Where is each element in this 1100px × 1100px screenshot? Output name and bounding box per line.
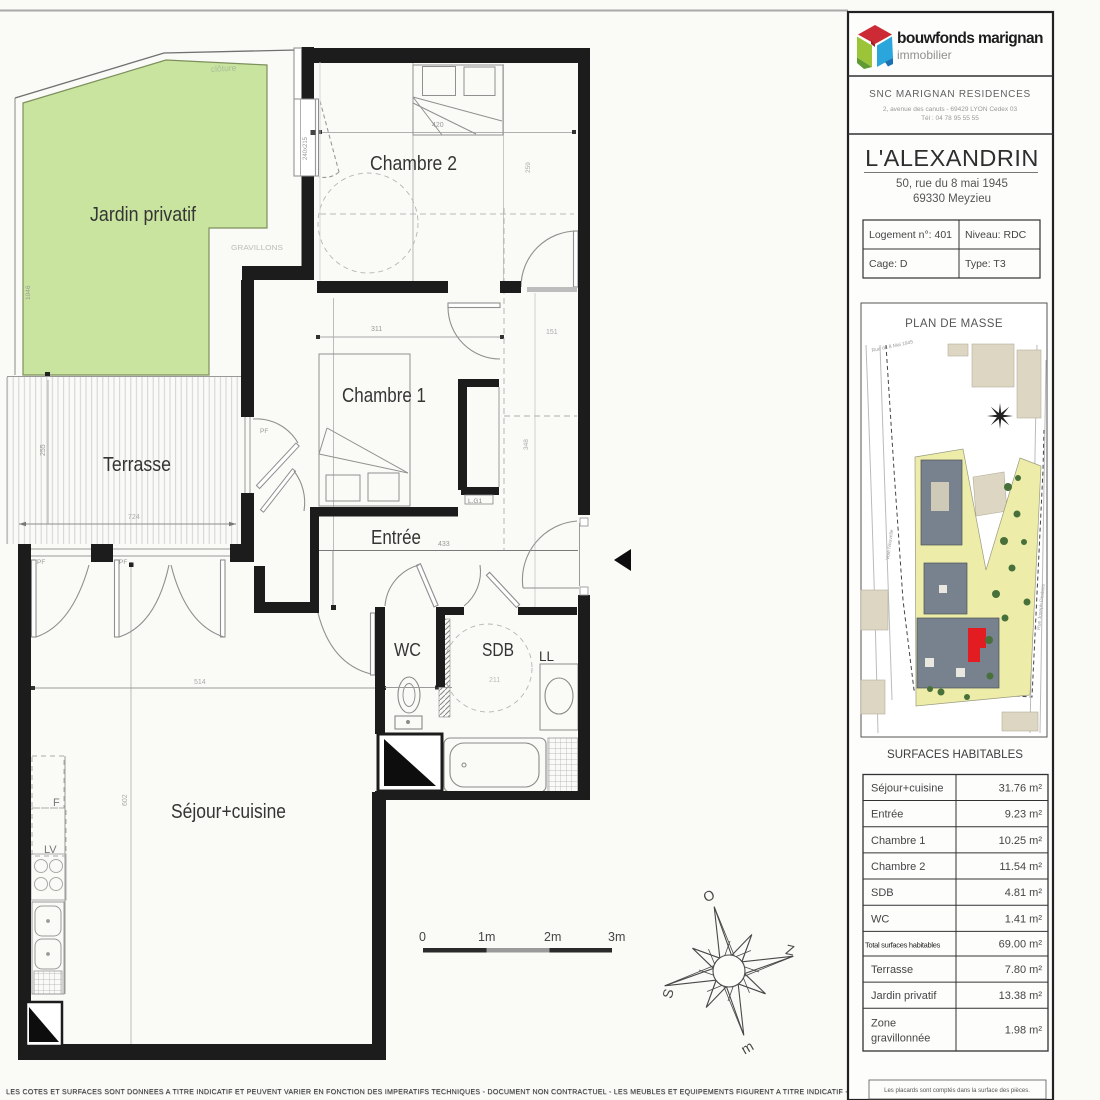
svg-text:PLAN DE MASSE: PLAN DE MASSE [905,318,1003,330]
svg-text:7.80 m²: 7.80 m² [1005,964,1043,976]
svg-text:50, rue du 8 mai 1945: 50, rue du 8 mai 1945 [896,178,1008,190]
svg-text:Entrée: Entrée [871,809,903,821]
svg-text:LL: LL [539,648,554,664]
svg-text:9.23 m²: 9.23 m² [1005,809,1043,821]
svg-text:1m: 1m [478,930,495,944]
svg-text:PF: PF [37,559,45,566]
svg-text:10.25 m²: 10.25 m² [999,835,1043,847]
svg-text:Jardin privatif: Jardin privatif [871,990,937,1002]
svg-text:Chambre 2: Chambre 2 [370,153,457,175]
svg-text:immobilier: immobilier [897,48,952,62]
svg-text:514: 514 [194,679,206,686]
svg-text:Séjour+cuisine: Séjour+cuisine [171,801,286,823]
svg-text:2, avenue des canuts - 69429 L: 2, avenue des canuts - 69429 LYON Cedex … [883,106,1018,113]
svg-text:SDB: SDB [482,640,514,660]
svg-text:Jardin privatif: Jardin privatif [90,204,196,226]
svg-text:WC: WC [394,640,421,660]
svg-text:Entrée: Entrée [371,527,421,549]
svg-text:724: 724 [128,514,140,521]
svg-text:Z: Z [784,941,796,959]
svg-text:PF: PF [260,428,268,435]
svg-text:bouwfonds marignan: bouwfonds marignan [897,30,1043,47]
svg-text:11.54 m²: 11.54 m² [999,861,1042,873]
svg-text:Terrasse: Terrasse [103,454,171,476]
svg-text:Type: T3: Type: T3 [965,258,1006,270]
svg-text:1.41 m²: 1.41 m² [1005,913,1043,925]
svg-text:433: 433 [438,541,450,548]
svg-text:L.G1: L.G1 [468,498,482,505]
svg-text:Total surfaces habitables: Total surfaces habitables [865,941,941,950]
svg-text:gravillonnée: gravillonnée [871,1032,930,1044]
svg-text:259: 259 [525,162,532,173]
svg-text:Logement n°: 401: Logement n°: 401 [869,229,952,241]
svg-text:311: 311 [371,326,382,333]
svg-text:SURFACES HABITABLES: SURFACES HABITABLES [887,747,1023,761]
svg-text:4.81 m²: 4.81 m² [1005,887,1043,899]
svg-text:2m: 2m [544,930,561,944]
svg-text:S: S [659,987,677,1000]
svg-text:LV: LV [44,844,57,856]
svg-text:3m: 3m [608,930,625,944]
svg-text:PF: PF [119,559,127,566]
svg-text:69330 Meyzieu: 69330 Meyzieu [913,193,991,205]
svg-text:602: 602 [122,794,129,806]
svg-text:O: O [701,886,718,905]
svg-text:Cage: D: Cage: D [869,258,908,270]
svg-text:WC: WC [871,913,889,925]
svg-text:151: 151 [546,329,558,336]
svg-text:L'ALEXANDRIN: L'ALEXANDRIN [865,145,1039,171]
svg-text:Les placards sont comptés dans: Les placards sont comptés dans la surfac… [884,1088,1030,1094]
svg-text:Niveau: RDC: Niveau: RDC [965,229,1027,241]
svg-text:1046: 1046 [25,285,32,300]
svg-text:0: 0 [419,930,426,944]
svg-text:Tél : 04 78 95 55 55: Tél : 04 78 95 55 55 [921,115,979,122]
svg-text:Chambre 1: Chambre 1 [871,835,925,847]
svg-text:240x215: 240x215 [303,136,309,160]
svg-text:clôture: clôture [211,63,237,74]
svg-text:255: 255 [40,444,47,456]
svg-text:31.76 m²: 31.76 m² [999,783,1043,795]
svg-text:F: F [53,797,60,809]
svg-text:LES COTES ET SURFACES SONT DON: LES COTES ET SURFACES SONT DONNEES A TIT… [6,1089,989,1096]
svg-text:Chambre 2: Chambre 2 [871,861,925,873]
svg-text:Terrasse: Terrasse [871,964,913,976]
svg-text:m: m [738,1038,756,1058]
svg-text:SNC MARIGNAN RESIDENCES: SNC MARIGNAN RESIDENCES [869,89,1031,100]
svg-text:69.00 m²: 69.00 m² [999,939,1043,951]
svg-text:Chambre 1: Chambre 1 [342,385,426,407]
svg-text:Séjour+cuisine: Séjour+cuisine [871,783,943,795]
svg-text:Zone: Zone [871,1017,896,1029]
svg-text:1.98 m²: 1.98 m² [1005,1025,1043,1037]
svg-text:211: 211 [489,677,500,684]
svg-text:420: 420 [432,122,444,129]
svg-text:13.38 m²: 13.38 m² [999,990,1043,1002]
svg-text:GRAVILLONS: GRAVILLONS [231,243,283,252]
svg-text:348: 348 [523,439,530,450]
svg-text:SDB: SDB [871,887,894,899]
